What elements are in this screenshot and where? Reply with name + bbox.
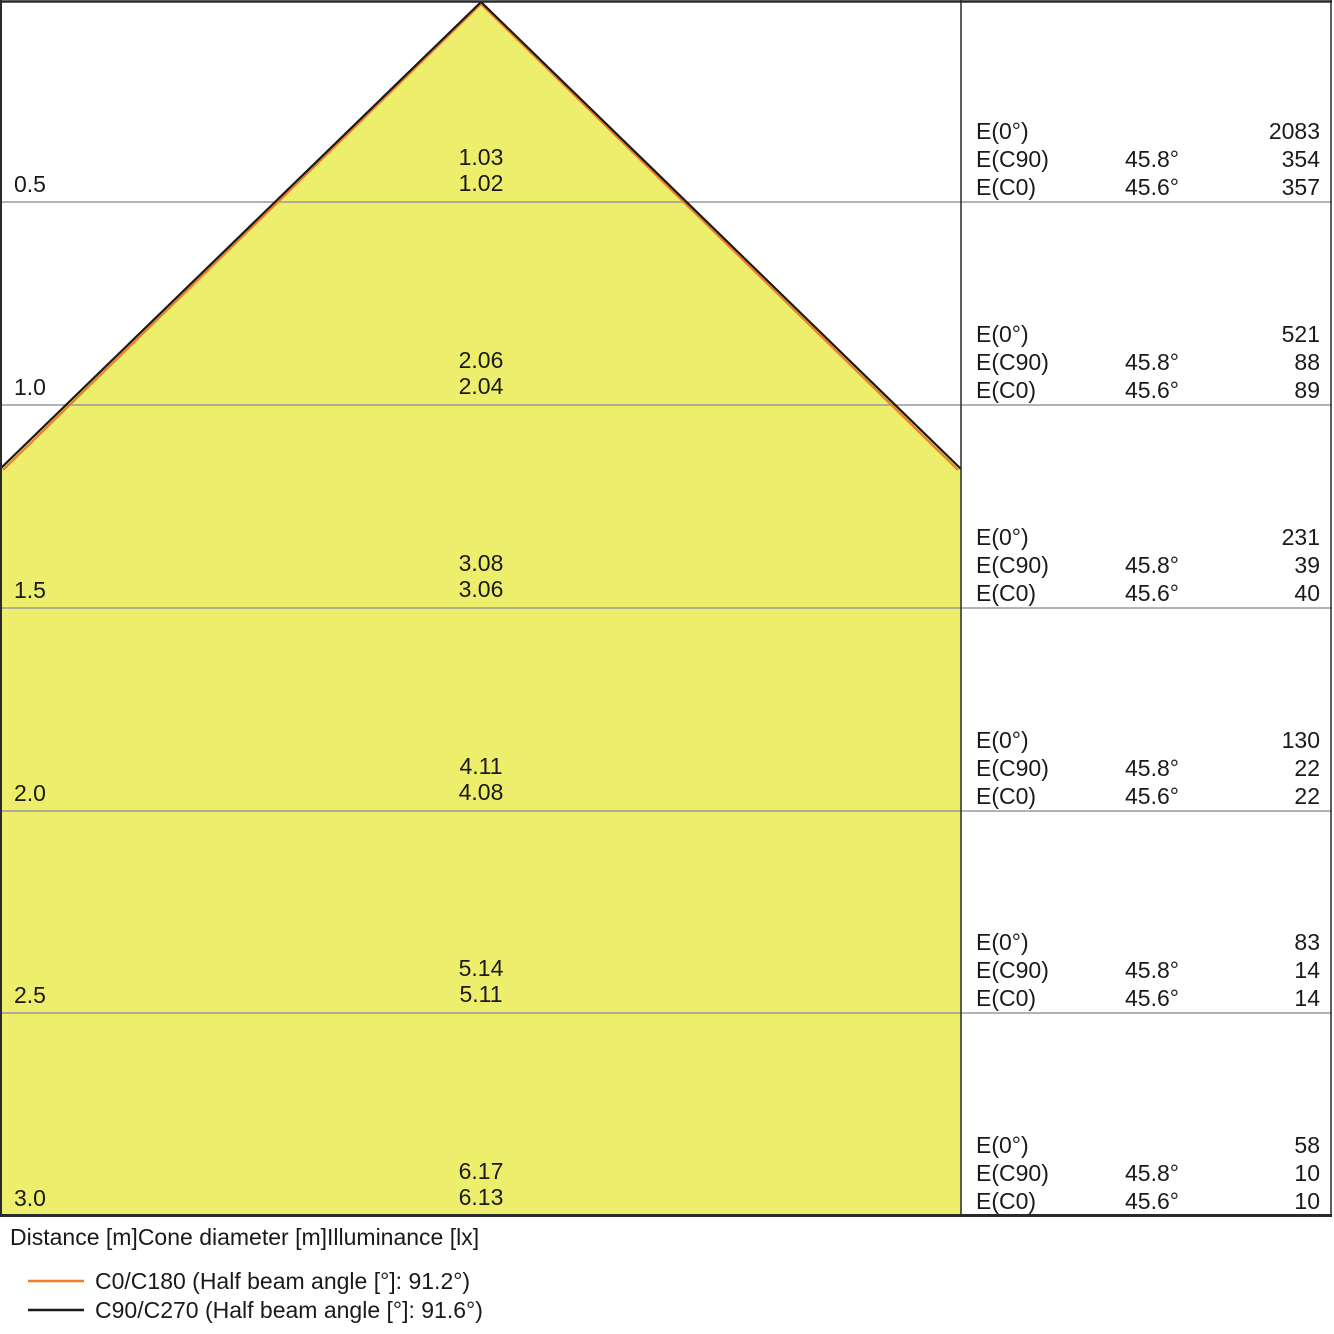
ec0-angle: 45.6° [1125, 984, 1179, 1012]
e0-label: E(0°) [976, 117, 1029, 145]
legend-c0-label: C0/C180 (Half beam angle [°]: 91.2°) [95, 1268, 470, 1294]
illuminance-ec0-row2: E(C0) 45.6° 89 [976, 376, 1320, 404]
ec0-label: E(C0) [976, 579, 1036, 607]
illuminance-ec90-row1: E(C90) 45.8° 354 [976, 145, 1320, 173]
illuminance-ec0-row6: E(C0) 45.6° 10 [976, 1187, 1320, 1215]
distance-label-2.5: 2.5 [14, 982, 46, 1008]
cone-diameter-c0-row2: 2.04 [331, 373, 631, 399]
e0-label: E(0°) [976, 320, 1029, 348]
ec90-label: E(C90) [976, 551, 1049, 579]
e0-label: E(0°) [976, 726, 1029, 754]
illuminance-ec90-row3: E(C90) 45.8° 39 [976, 551, 1320, 579]
ec0-value: 357 [1282, 173, 1320, 201]
distance-label-0.5: 0.5 [14, 171, 46, 197]
ec0-label: E(C0) [976, 984, 1036, 1012]
e0-value: 83 [1294, 928, 1320, 956]
legend-c90-label: C90/C270 (Half beam angle [°]: 91.6°) [95, 1297, 483, 1323]
illuminance-e0-row6: E(0°) 58 [976, 1131, 1320, 1159]
distance-label-1.0: 1.0 [14, 374, 46, 400]
ec0-angle: 45.6° [1125, 782, 1179, 810]
ec90-label: E(C90) [976, 145, 1049, 173]
illuminance-e0-row1: E(0°) 2083 [976, 117, 1320, 145]
ec0-angle: 45.6° [1125, 1187, 1179, 1215]
illuminance-ec0-row3: E(C0) 45.6° 40 [976, 579, 1320, 607]
ec90-value: 14 [1294, 956, 1320, 984]
axis-caption: Distance [m]Cone diameter [m]Illuminance… [10, 1224, 479, 1250]
illuminance-ec0-row1: E(C0) 45.6° 357 [976, 173, 1320, 201]
cone-diameter-c90-row4: 4.11 [331, 753, 631, 779]
illuminance-ec0-row5: E(C0) 45.6° 14 [976, 984, 1320, 1012]
distance-label-3.0: 3.0 [14, 1185, 46, 1211]
e0-value: 130 [1282, 726, 1320, 754]
e0-value: 521 [1282, 320, 1320, 348]
ec90-label: E(C90) [976, 1159, 1049, 1187]
cone-diameter-c90-row1: 1.03 [331, 144, 631, 170]
illuminance-e0-row5: E(0°) 83 [976, 928, 1320, 956]
cone-diameter-c90-row3: 3.08 [331, 550, 631, 576]
ec90-value: 88 [1294, 348, 1320, 376]
illuminance-ec90-row4: E(C90) 45.8° 22 [976, 754, 1320, 782]
cone-diameter-c90-row6: 6.17 [331, 1158, 631, 1184]
cone-diameter-c0-row5: 5.11 [331, 981, 631, 1007]
illuminance-ec90-row5: E(C90) 45.8° 14 [976, 956, 1320, 984]
ec90-angle: 45.8° [1125, 348, 1179, 376]
e0-value: 231 [1282, 523, 1320, 551]
cone-diameter-c0-row6: 6.13 [331, 1184, 631, 1210]
e0-value: 58 [1294, 1131, 1320, 1159]
ec0-value: 40 [1294, 579, 1320, 607]
ec90-angle: 45.8° [1125, 145, 1179, 173]
e0-value: 2083 [1269, 117, 1320, 145]
illuminance-ec0-row4: E(C0) 45.6° 22 [976, 782, 1320, 810]
ec0-value: 14 [1294, 984, 1320, 1012]
ec0-value: 10 [1294, 1187, 1320, 1215]
ec90-value: 354 [1282, 145, 1320, 173]
cone-diameter-c0-row4: 4.08 [331, 779, 631, 805]
illuminance-ec90-row2: E(C90) 45.8° 88 [976, 348, 1320, 376]
cone-diameter-c0-row3: 3.06 [331, 576, 631, 602]
ec0-angle: 45.6° [1125, 579, 1179, 607]
illuminance-e0-row4: E(0°) 130 [976, 726, 1320, 754]
ec90-value: 22 [1294, 754, 1320, 782]
distance-label-2.0: 2.0 [14, 780, 46, 806]
illuminance-e0-row2: E(0°) 521 [976, 320, 1320, 348]
ec0-value: 22 [1294, 782, 1320, 810]
cone-diameter-c90-row2: 2.06 [331, 347, 631, 373]
ec90-angle: 45.8° [1125, 551, 1179, 579]
ec0-angle: 45.6° [1125, 173, 1179, 201]
ec0-angle: 45.6° [1125, 376, 1179, 404]
ec90-value: 39 [1294, 551, 1320, 579]
ec90-angle: 45.8° [1125, 956, 1179, 984]
ec0-value: 89 [1294, 376, 1320, 404]
e0-label: E(0°) [976, 523, 1029, 551]
ec0-label: E(C0) [976, 782, 1036, 810]
illuminance-e0-row3: E(0°) 231 [976, 523, 1320, 551]
cone-diagram: 0.5 1.0 1.5 2.0 2.5 3.0 1.03 1.02 2.06 2… [0, 0, 1334, 1334]
cone-diameter-c90-row5: 5.14 [331, 955, 631, 981]
ec90-angle: 45.8° [1125, 1159, 1179, 1187]
ec90-value: 10 [1294, 1159, 1320, 1187]
distance-label-1.5: 1.5 [14, 577, 46, 603]
ec0-label: E(C0) [976, 173, 1036, 201]
ec0-label: E(C0) [976, 376, 1036, 404]
ec90-label: E(C90) [976, 754, 1049, 782]
ec0-label: E(C0) [976, 1187, 1036, 1215]
e0-label: E(0°) [976, 928, 1029, 956]
ec90-label: E(C90) [976, 348, 1049, 376]
ec90-label: E(C90) [976, 956, 1049, 984]
e0-label: E(0°) [976, 1131, 1029, 1159]
cone-diameter-c0-row1: 1.02 [331, 170, 631, 196]
ec90-angle: 45.8° [1125, 754, 1179, 782]
illuminance-ec90-row6: E(C90) 45.8° 10 [976, 1159, 1320, 1187]
